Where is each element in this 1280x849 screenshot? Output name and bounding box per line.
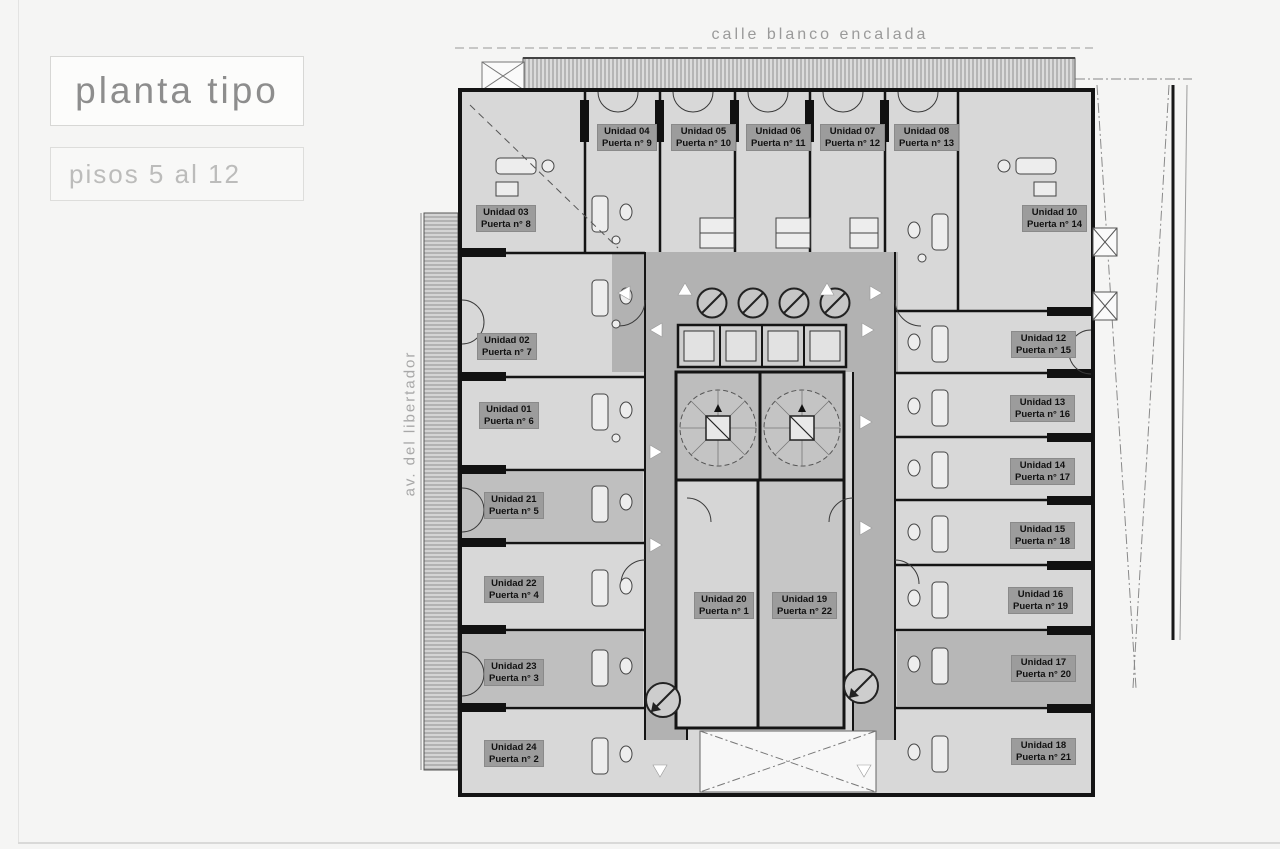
unit-label-unidad-06: Unidad 06Puerta n° 11 xyxy=(746,124,811,151)
unit-label-unidad-08: Unidad 08Puerta n° 13 xyxy=(894,124,959,151)
unit-label-unidad-22: Unidad 22Puerta n° 4 xyxy=(484,576,544,603)
unit-label-unidad-02: Unidad 02Puerta n° 7 xyxy=(477,333,537,360)
unit-label-unidad-17: Unidad 17Puerta n° 20 xyxy=(1011,655,1076,682)
unit-label-unidad-05: Unidad 05Puerta n° 10 xyxy=(671,124,736,151)
unit-label-unidad-24: Unidad 24Puerta n° 2 xyxy=(484,740,544,767)
unit-label-unidad-10: Unidad 10Puerta n° 14 xyxy=(1022,205,1087,232)
unit-label-unidad-23: Unidad 23Puerta n° 3 xyxy=(484,659,544,686)
left-balcony-deck xyxy=(424,213,458,770)
unit-label-unidad-12: Unidad 12Puerta n° 15 xyxy=(1011,331,1076,358)
unit-label-unidad-16: Unidad 16Puerta n° 19 xyxy=(1008,587,1073,614)
spiral-stair-right xyxy=(764,390,840,466)
spiral-stair-left xyxy=(680,390,756,466)
elevator-car xyxy=(684,331,714,361)
top-balcony-deck xyxy=(523,58,1075,90)
unit-label-unidad-04: Unidad 04Puerta n° 9 xyxy=(597,124,657,151)
unit-label-unidad-14: Unidad 14Puerta n° 17 xyxy=(1010,458,1075,485)
stair-cores xyxy=(676,372,844,480)
elevator-car xyxy=(726,331,756,361)
right-wall-vents xyxy=(1093,228,1117,320)
corridor-right-leg xyxy=(853,252,895,740)
unit-label-unidad-20: Unidad 20Puerta n° 1 xyxy=(694,592,754,619)
unit-label-unidad-07: Unidad 07Puerta n° 12 xyxy=(820,124,885,151)
floor-plan: Unidad 04Puerta n° 9Unidad 05Puerta n° 1… xyxy=(0,0,1280,849)
unit-label-unidad-15: Unidad 15Puerta n° 18 xyxy=(1010,522,1075,549)
elevator-car xyxy=(768,331,798,361)
elevator-bank xyxy=(678,325,846,367)
unit-label-unidad-13: Unidad 13Puerta n° 16 xyxy=(1010,395,1075,422)
elevator-car xyxy=(810,331,840,361)
unit-label-unidad-03: Unidad 03Puerta n° 8 xyxy=(476,205,536,232)
unit-label-unidad-01: Unidad 01Puerta n° 6 xyxy=(479,402,539,429)
unit-label-unidad-19: Unidad 19Puerta n° 22 xyxy=(772,592,837,619)
void-patio xyxy=(700,731,876,792)
unit-label-unidad-18: Unidad 18Puerta n° 21 xyxy=(1011,738,1076,765)
unit-label-unidad-21: Unidad 21Puerta n° 5 xyxy=(484,492,544,519)
